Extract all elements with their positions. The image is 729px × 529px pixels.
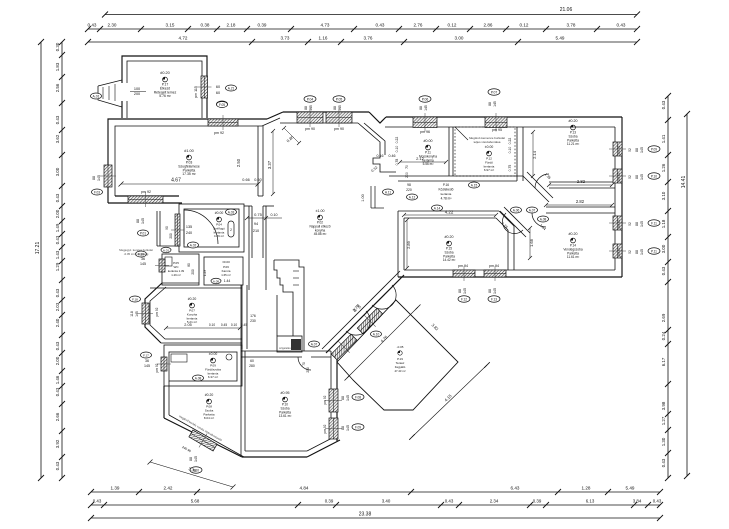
svg-text:F.18: F.18: [132, 298, 138, 302]
svg-text:1.29: 1.29: [203, 270, 207, 276]
svg-text:220: 220: [406, 188, 412, 192]
svg-text:145: 145: [346, 395, 350, 401]
svg-text:pm 92: pm 92: [155, 307, 159, 316]
svg-text:P.06: P.06: [422, 98, 429, 102]
svg-text:#0.95: #0.95: [281, 391, 290, 395]
svg-text:A.07: A.07: [311, 343, 318, 347]
svg-text:4.73: 4.73: [321, 23, 330, 28]
svg-text:pm 92: pm 92: [617, 172, 621, 181]
svg-text:2.18: 2.18: [227, 23, 236, 28]
svg-text:-0.05: -0.05: [397, 345, 404, 349]
svg-text:3.37: 3.37: [267, 160, 272, 169]
svg-text:1.39: 1.39: [111, 486, 120, 491]
svg-text:5.76 m²: 5.76 m²: [159, 94, 171, 98]
svg-text:145: 145: [144, 364, 150, 368]
svg-text:pm 94: pm 94: [458, 264, 468, 268]
svg-text:145: 145: [640, 147, 644, 153]
svg-text:3.10: 3.10: [661, 191, 666, 200]
svg-text:0.43: 0.43: [376, 23, 385, 28]
svg-text:1.49: 1.49: [55, 223, 60, 232]
svg-text:#0.20: #0.20: [188, 297, 197, 301]
svg-text:200: 200: [134, 92, 140, 96]
svg-text:0.43: 0.43: [617, 23, 626, 28]
svg-text:±0.00: ±0.00: [485, 145, 494, 149]
svg-text:4.72: 4.72: [179, 36, 188, 41]
svg-text:pm 92: pm 92: [617, 145, 621, 154]
svg-text:A.21: A.21: [228, 87, 235, 91]
svg-text:3.78: 3.78: [567, 23, 576, 28]
svg-text:0.43: 0.43: [55, 387, 60, 396]
svg-text:52: 52: [628, 222, 632, 226]
svg-text:0.45: 0.45: [241, 323, 247, 327]
svg-text:280: 280: [249, 364, 255, 368]
svg-text:60: 60: [216, 85, 220, 89]
svg-text:0.66: 0.66: [242, 178, 249, 182]
svg-text:teljes visszabontása: teljes visszabontása: [474, 140, 501, 144]
svg-text:145: 145: [424, 105, 428, 111]
svg-text:A.07: A.07: [529, 209, 536, 213]
svg-text:23.38: 23.38: [359, 512, 372, 518]
svg-text:0.43: 0.43: [445, 499, 454, 504]
svg-text:13.61 m²: 13.61 m²: [279, 414, 292, 418]
svg-text:88: 88: [635, 250, 639, 254]
svg-text:A.14: A.14: [434, 207, 441, 211]
svg-text:1.83: 1.83: [55, 62, 60, 71]
svg-text:60: 60: [216, 91, 220, 95]
svg-text:0.39: 0.39: [325, 499, 334, 504]
svg-text:3.98: 3.98: [661, 401, 666, 410]
svg-text:145: 145: [309, 105, 313, 111]
svg-text:F.09: F.09: [355, 426, 361, 430]
svg-text:pm 90: pm 90: [305, 127, 315, 131]
svg-text:#0.20: #0.20: [205, 393, 214, 397]
svg-text:88: 88: [419, 106, 423, 110]
svg-text:0.43: 0.43: [55, 193, 60, 202]
svg-text:#0.00: #0.00: [215, 211, 224, 215]
svg-text:1.16: 1.16: [319, 36, 328, 41]
svg-text:0.43: 0.43: [55, 288, 60, 297]
svg-text:145: 145: [463, 288, 467, 294]
svg-text:A.01: A.01: [163, 249, 170, 253]
svg-text:pm 90: pm 90: [334, 127, 344, 131]
svg-text:145: 145: [194, 456, 198, 462]
svg-text:36: 36: [141, 257, 145, 261]
svg-text:3.62: 3.62: [55, 134, 60, 143]
svg-text:88: 88: [333, 106, 337, 110]
svg-text:1.43: 1.43: [55, 250, 60, 259]
svg-text:A.06: A.06: [513, 209, 520, 213]
svg-text:3.15: 3.15: [166, 23, 175, 28]
svg-text:1.65 m²: 1.65 m²: [221, 273, 231, 277]
svg-text:0.39: 0.39: [258, 23, 267, 28]
svg-text:0.43: 0.43: [88, 23, 97, 28]
svg-text:90: 90: [165, 226, 169, 230]
svg-text:3.00: 3.00: [455, 36, 464, 41]
svg-text:P.01: P.01: [140, 232, 146, 236]
svg-text:1.28: 1.28: [582, 486, 591, 491]
svg-text:pm 96: pm 96: [420, 130, 430, 134]
svg-text:60: 60: [250, 359, 254, 363]
svg-text:240: 240: [186, 231, 192, 235]
svg-text:0.43: 0.43: [661, 458, 666, 467]
svg-text:P.09: P.09: [651, 148, 657, 152]
svg-text:118: 118: [130, 311, 134, 317]
svg-text:A.03: A.03: [228, 211, 235, 215]
svg-text:145: 145: [140, 262, 146, 266]
svg-text:6.37 m²: 6.37 m²: [208, 375, 218, 379]
svg-text:2.69: 2.69: [661, 313, 666, 322]
svg-text:pm 94: pm 94: [489, 264, 499, 268]
svg-text:1.27: 1.27: [661, 416, 666, 425]
svg-text:145: 145: [640, 221, 644, 227]
svg-text:4.22: 4.22: [445, 210, 454, 215]
svg-text:210: 210: [253, 229, 259, 233]
svg-text:88: 88: [304, 106, 308, 110]
svg-text:0.43: 0.43: [93, 499, 102, 504]
svg-text:230: 230: [250, 319, 256, 323]
svg-text:94: 94: [254, 222, 258, 226]
svg-text:4.78 m²: 4.78 m²: [441, 197, 452, 201]
svg-text:0.43: 0.43: [661, 266, 666, 275]
svg-text:F.13: F.13: [491, 298, 497, 302]
svg-text:A.09: A.09: [213, 280, 220, 284]
svg-text:98: 98: [407, 183, 411, 187]
svg-text:200: 200: [306, 367, 310, 373]
svg-text:2.42: 2.42: [164, 486, 173, 491]
svg-text:5.56 m²: 5.56 m²: [423, 162, 434, 166]
svg-text:0.78: 0.78: [395, 159, 399, 166]
svg-text:±0.00: ±0.00: [222, 260, 230, 264]
svg-text:#0.20: #0.20: [569, 232, 578, 236]
svg-text:5.49: 5.49: [556, 36, 565, 41]
svg-text:6.13: 6.13: [586, 499, 595, 504]
svg-text:1.46: 1.46: [55, 375, 60, 384]
svg-text:A.15: A.15: [471, 184, 478, 188]
svg-text:F.12: F.12: [461, 298, 467, 302]
svg-text:0.10: 0.10: [271, 213, 278, 217]
svg-text:6.97 m²: 6.97 m²: [484, 168, 494, 172]
svg-text:3.76: 3.76: [364, 36, 373, 41]
svg-text:88: 88: [189, 457, 193, 461]
svg-text:A.01: A.01: [93, 95, 100, 99]
svg-text:P.10: P.10: [651, 175, 657, 179]
svg-text:6.17: 6.17: [661, 357, 666, 366]
svg-text:0.24: 0.24: [661, 331, 666, 340]
svg-text:36: 36: [145, 359, 149, 363]
svg-text:2.00: 2.00: [55, 356, 60, 365]
svg-text:pm 92: pm 92: [617, 219, 621, 228]
svg-text:1.30: 1.30: [661, 437, 666, 446]
svg-text:21.06: 21.06: [560, 7, 573, 13]
svg-text:0.43: 0.43: [55, 115, 60, 124]
svg-text:0.12: 0.12: [520, 23, 529, 28]
svg-text:145: 145: [493, 101, 497, 107]
svg-text:200: 200: [405, 172, 409, 178]
svg-text:2.12: 2.12: [416, 156, 425, 161]
svg-text:A.10: A.10: [373, 333, 380, 337]
svg-text:A.02: A.02: [190, 244, 197, 248]
svg-text:#0.00: #0.00: [424, 139, 433, 143]
svg-text:0.12: 0.12: [448, 23, 457, 28]
svg-text:14.42 m²: 14.42 m²: [443, 258, 456, 262]
svg-text:145: 145: [141, 218, 145, 224]
svg-text:2.50: 2.50: [236, 158, 241, 167]
svg-text:52: 52: [628, 148, 632, 152]
svg-text:P.11: P.11: [651, 250, 657, 254]
svg-text:135: 135: [186, 225, 192, 229]
svg-text:3.40: 3.40: [382, 499, 391, 504]
svg-text:88: 88: [635, 148, 639, 152]
svg-text:2.03: 2.03: [55, 302, 60, 311]
svg-text:0.75: 0.75: [508, 165, 512, 172]
svg-text:145: 145: [97, 175, 101, 181]
svg-text:88: 88: [458, 289, 462, 293]
svg-text:F.03: F.03: [94, 191, 100, 195]
svg-text:11.21 m²: 11.21 m²: [567, 142, 579, 146]
svg-text:2.86: 2.86: [484, 23, 493, 28]
svg-text:#0.20: #0.20: [445, 235, 454, 239]
svg-text:4.84: 4.84: [300, 486, 309, 491]
svg-text:88: 88: [488, 102, 492, 106]
svg-text:3.84: 3.84: [633, 499, 642, 504]
svg-text:0.10: 0.10: [231, 323, 237, 327]
svg-text:45.86 m²: 45.86 m²: [314, 232, 327, 236]
svg-text:145: 145: [493, 288, 497, 294]
svg-text:F.17: F.17: [143, 354, 149, 358]
svg-text:0.43: 0.43: [55, 461, 60, 470]
svg-text:3.00: 3.00: [661, 244, 666, 253]
svg-text:2.82: 2.82: [577, 179, 586, 184]
svg-text:1.18: 1.18: [661, 219, 666, 228]
svg-text:2.34: 2.34: [490, 499, 499, 504]
svg-text:8.04 m²: 8.04 m²: [204, 416, 214, 420]
svg-text:14.41: 14.41: [681, 176, 687, 189]
svg-text:4.67: 4.67: [171, 178, 181, 184]
svg-text:1.29: 1.29: [55, 262, 60, 271]
svg-text:17.35 m²: 17.35 m²: [182, 172, 196, 176]
svg-text:1.00: 1.00: [361, 194, 365, 201]
svg-text:#1.00: #1.00: [184, 149, 194, 153]
svg-text:pm 92: pm 92: [214, 131, 224, 135]
svg-text:2.40: 2.40: [55, 318, 60, 327]
svg-text:0.43: 0.43: [55, 235, 60, 244]
svg-text:145: 145: [135, 311, 139, 317]
svg-text:F.08: F.08: [355, 396, 361, 400]
svg-text:P.04: P.04: [307, 98, 314, 102]
svg-text:100: 100: [134, 87, 140, 91]
svg-text:0.16: 0.16: [377, 154, 384, 158]
svg-text:P.05: P.05: [336, 98, 343, 102]
svg-text:2.82: 2.82: [576, 199, 585, 204]
svg-text:#0.20: #0.20: [160, 71, 170, 75]
svg-text:pm 95: pm 95: [492, 128, 502, 132]
svg-text:0.46: 0.46: [389, 154, 396, 158]
svg-text:145: 145: [346, 425, 350, 431]
svg-text:88: 88: [341, 396, 345, 400]
svg-text:pm 92: pm 92: [323, 395, 327, 404]
svg-text:145: 145: [640, 174, 644, 180]
svg-text:0.38: 0.38: [201, 23, 210, 28]
svg-text:70: 70: [405, 165, 409, 169]
svg-text:1.29 m²: 1.29 m²: [171, 273, 181, 277]
svg-text:±0.00: ±0.00: [209, 352, 218, 356]
svg-text:2.76: 2.76: [414, 23, 423, 28]
svg-text:2.66: 2.66: [55, 412, 60, 421]
svg-text:88: 88: [488, 289, 492, 293]
svg-text:#0.20: #0.20: [569, 119, 578, 123]
svg-text:145: 145: [640, 249, 644, 255]
svg-text:88: 88: [635, 222, 639, 226]
svg-text:88: 88: [341, 426, 345, 430]
svg-text:pm 92: pm 92: [617, 247, 621, 256]
svg-text:F.05: F.05: [219, 103, 225, 107]
svg-text:3.92: 3.92: [55, 439, 60, 448]
svg-text:A.08: A.08: [195, 377, 202, 381]
svg-text:17.21: 17.21: [35, 242, 41, 255]
svg-text:1.41: 1.41: [661, 134, 666, 143]
svg-text:200: 200: [169, 233, 173, 239]
svg-text:70: 70: [302, 362, 306, 366]
svg-text:0.10: 0.10: [209, 323, 215, 327]
svg-text:0.43: 0.43: [661, 100, 666, 109]
svg-text:176: 176: [250, 314, 256, 318]
svg-text:2.00: 2.00: [55, 209, 60, 218]
svg-text:5.68: 5.68: [191, 499, 200, 504]
svg-text:1.26: 1.26: [661, 163, 666, 172]
svg-text:52: 52: [628, 250, 632, 254]
svg-text:1.44: 1.44: [224, 279, 231, 283]
svg-text:A.11: A.11: [385, 191, 392, 195]
svg-text:3.00: 3.00: [55, 167, 60, 176]
svg-text:P.16: P.16: [443, 183, 449, 187]
svg-text:6.43: 6.43: [511, 486, 520, 491]
svg-text:0.30: 0.30: [55, 42, 60, 51]
svg-text:0.10: 0.10: [395, 146, 399, 153]
svg-text:0.60: 0.60: [254, 178, 261, 182]
svg-text:145: 145: [338, 105, 342, 111]
svg-text:0.75: 0.75: [254, 212, 263, 217]
svg-text:pm 92: pm 92: [323, 424, 327, 433]
svg-text:pm 92: pm 92: [141, 190, 151, 194]
svg-text:80: 80: [187, 263, 191, 267]
svg-text:3.73: 3.73: [281, 36, 290, 41]
svg-text:P.07: P.07: [491, 91, 498, 95]
svg-text:52: 52: [628, 175, 632, 179]
svg-text:Közlekedő: Közlekedő: [439, 188, 454, 192]
svg-text:2.30: 2.30: [108, 23, 117, 28]
svg-text:0.45: 0.45: [221, 323, 227, 327]
svg-text:kerámia: kerámia: [441, 192, 452, 196]
svg-text:pm 115: pm 115: [194, 86, 198, 98]
svg-text:2.56: 2.56: [55, 83, 60, 92]
svg-text:5.49: 5.49: [626, 486, 635, 491]
svg-text:2: 2: [230, 228, 232, 232]
svg-text:-0.05 cm magasság: -0.05 cm magasság: [124, 252, 149, 256]
svg-text:0.43: 0.43: [55, 341, 60, 350]
svg-text:0.39: 0.39: [533, 499, 542, 504]
svg-text:pm 92: pm 92: [155, 363, 159, 372]
svg-text:4.29 m²: 4.29 m²: [214, 234, 224, 238]
svg-text:11.61 m²: 11.61 m²: [567, 255, 579, 259]
svg-text:200: 200: [191, 269, 195, 275]
svg-text:±1.00: ±1.00: [316, 209, 325, 213]
svg-text:0.22: 0.22: [395, 137, 399, 144]
svg-text:2.05: 2.05: [184, 323, 191, 327]
svg-text:A.12: A.12: [409, 196, 416, 200]
svg-text:A.08: A.08: [540, 218, 547, 222]
svg-text:88: 88: [136, 219, 140, 223]
svg-text:47.43 m²: 47.43 m²: [394, 369, 405, 373]
svg-text:0.10: 0.10: [508, 147, 512, 154]
svg-text:0.22: 0.22: [508, 138, 512, 145]
svg-text:0.43: 0.43: [653, 499, 662, 504]
svg-text:88: 88: [92, 176, 96, 180]
svg-text:F.11: F.11: [651, 222, 657, 226]
svg-text:88: 88: [635, 175, 639, 179]
